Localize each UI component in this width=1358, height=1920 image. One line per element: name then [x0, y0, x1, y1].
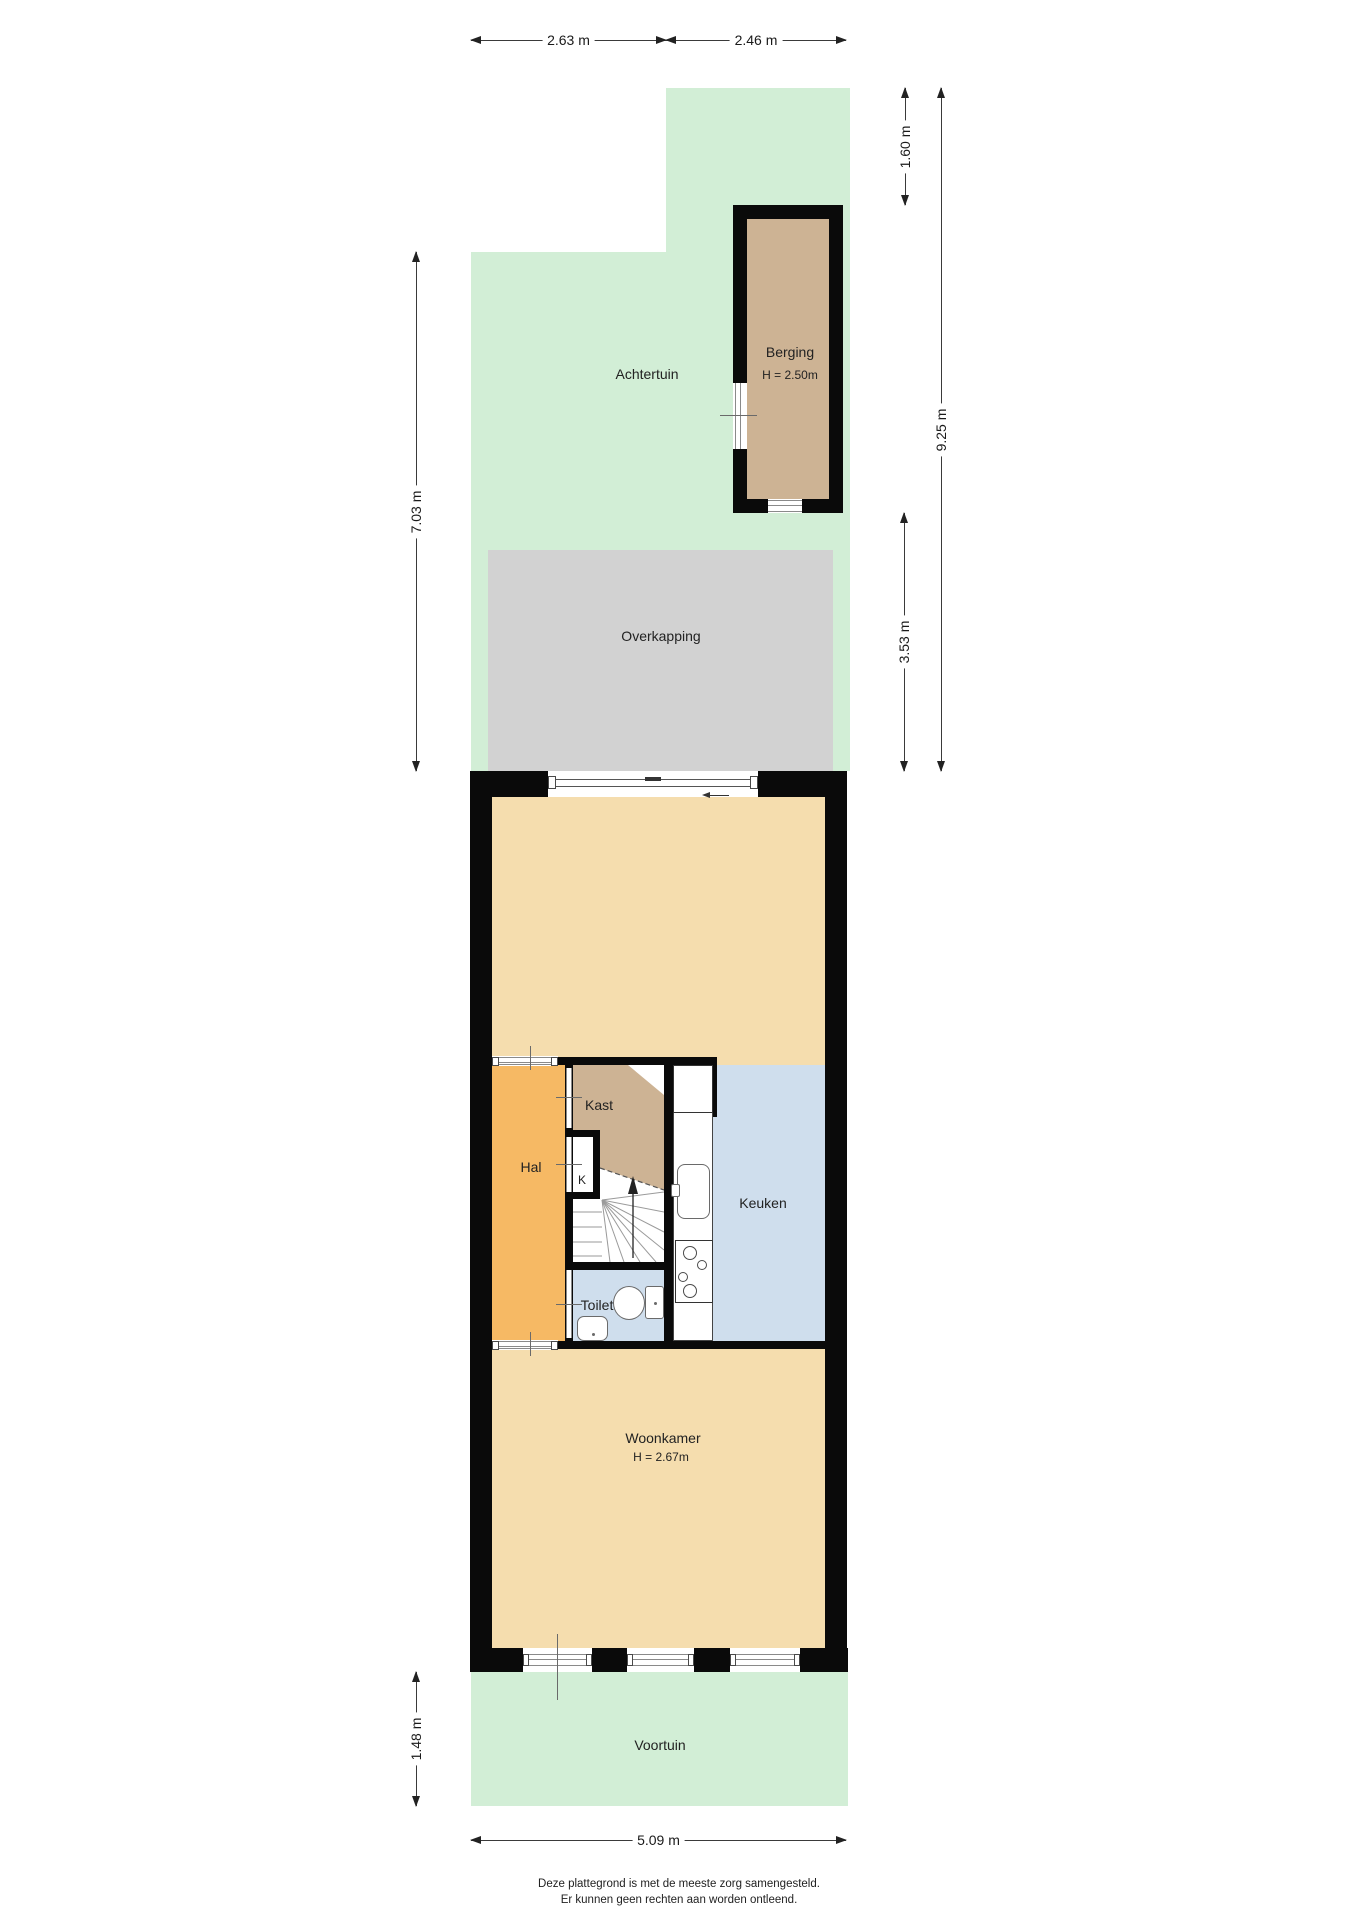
window-frame-cap [730, 1654, 736, 1666]
dimension-label: 2.63 m [542, 32, 595, 48]
door-frame-cap [750, 776, 758, 789]
window-glass-icon [492, 1057, 558, 1065]
window-interior-hal-top [492, 1056, 558, 1066]
window-frame-cap [492, 1057, 499, 1066]
wall-kitchen-top-sliver [713, 1057, 717, 1117]
wall-toilet-top [565, 1262, 673, 1270]
window-frame-cap [586, 1654, 592, 1666]
dimension-label: 1.48 m [408, 1713, 424, 1766]
window-front-2 [627, 1648, 694, 1672]
window-frame-cap [627, 1654, 633, 1666]
window-frame-cap [492, 1341, 499, 1350]
dimension-label: 7.03 m [408, 485, 424, 538]
backdoor-opening [548, 771, 758, 797]
door-frame-cap [548, 776, 556, 789]
toilet-bowl-icon [613, 1286, 645, 1320]
voortuin-label: Voortuin [634, 1737, 685, 1753]
berging-window [768, 499, 802, 513]
window-frame-cap [688, 1654, 694, 1666]
sliding-door-kast [566, 1068, 572, 1128]
wall-backroom-middle [558, 1057, 717, 1065]
window-frame-cap [523, 1654, 529, 1666]
kitchen-faucet-icon [671, 1184, 680, 1197]
door-tick [556, 1304, 582, 1305]
window-center-tick [530, 1332, 531, 1356]
window-glass-icon [492, 1341, 558, 1349]
disclaimer-line-2: Er kunnen geen rechten aan worden ontlee… [0, 1892, 1358, 1908]
stairs [573, 1130, 664, 1262]
window-frame-cap [551, 1341, 558, 1350]
door-tick [556, 1097, 582, 1098]
wall-bottom-pier-1 [592, 1648, 627, 1672]
dimension-label: 1.60 m [897, 120, 913, 173]
wall-bottom-corner-right [800, 1648, 848, 1672]
berging-door-tick [720, 415, 757, 416]
backroom-floor [492, 797, 825, 1065]
wall-middle-woonkamer [558, 1341, 825, 1349]
woonkamer-label: Woonkamer [625, 1430, 700, 1446]
kitchen-sink [677, 1164, 710, 1219]
wall-right [825, 771, 847, 1672]
berging-label: Berging [766, 344, 814, 360]
wall-left [470, 771, 492, 1672]
floorplan-canvas: Berging H = 2.50m [0, 0, 1358, 1920]
woonkamer-floor [492, 1349, 825, 1648]
berging-height-label: H = 2.50m [762, 368, 818, 382]
achtertuin-label: Achtertuin [615, 366, 678, 382]
hal-label: Hal [520, 1159, 541, 1175]
disclaimer-text: Deze plattegrond is met de meeste zorg s… [0, 1876, 1358, 1908]
berging-sliding-door [735, 383, 741, 449]
hal-floor [492, 1065, 565, 1341]
overkapping-label: Overkapping [621, 628, 700, 644]
door-swing-arrow-icon [702, 792, 710, 798]
sliding-door-panel [645, 777, 661, 781]
stove-burner-icon [683, 1284, 697, 1298]
wall-kitchen [664, 1065, 673, 1341]
dimension-label: 3.53 m [896, 616, 912, 669]
dimension-label: 5.09 m [632, 1832, 685, 1848]
fridge [673, 1065, 713, 1113]
disclaimer-line-1: Deze plattegrond is met de meeste zorg s… [0, 1876, 1358, 1892]
door-swing-arrow-shaft [708, 795, 729, 796]
window-glass-icon [627, 1654, 694, 1666]
wall-bottom-corner-left [470, 1648, 523, 1672]
stove-burner-icon [678, 1272, 688, 1282]
sliding-door-rail [551, 786, 755, 787]
stove-burner-icon [697, 1260, 707, 1270]
stove-burner-icon [683, 1246, 697, 1260]
window-center-tick [530, 1046, 531, 1070]
dimension-label: 2.46 m [730, 32, 783, 48]
overkapping-area [488, 550, 833, 771]
kast-label: Kast [585, 1097, 613, 1113]
wall-bottom-pier-2 [694, 1648, 730, 1672]
window-glass-icon [768, 500, 802, 512]
k-closet-label: K [578, 1173, 586, 1187]
stairs-up-arrow-head [628, 1176, 638, 1194]
woonkamer-height-label: H = 2.67m [633, 1450, 689, 1464]
dimension-label: 9.25 m [933, 403, 949, 456]
window-front-3 [730, 1648, 800, 1672]
window-interior-hal-bottom [492, 1340, 558, 1350]
window-glass-icon [730, 1654, 800, 1666]
front-entry-line [557, 1634, 558, 1700]
wall-top-left-segment [470, 771, 548, 797]
toilet-label: Toilet [581, 1297, 614, 1313]
window-frame-cap [551, 1057, 558, 1066]
toilet-cistern-icon [645, 1286, 664, 1319]
window-frame-cap [794, 1654, 800, 1666]
wall-top-right-segment [758, 771, 847, 797]
keuken-label: Keuken [739, 1195, 786, 1211]
toilet-basin-icon [577, 1316, 608, 1341]
